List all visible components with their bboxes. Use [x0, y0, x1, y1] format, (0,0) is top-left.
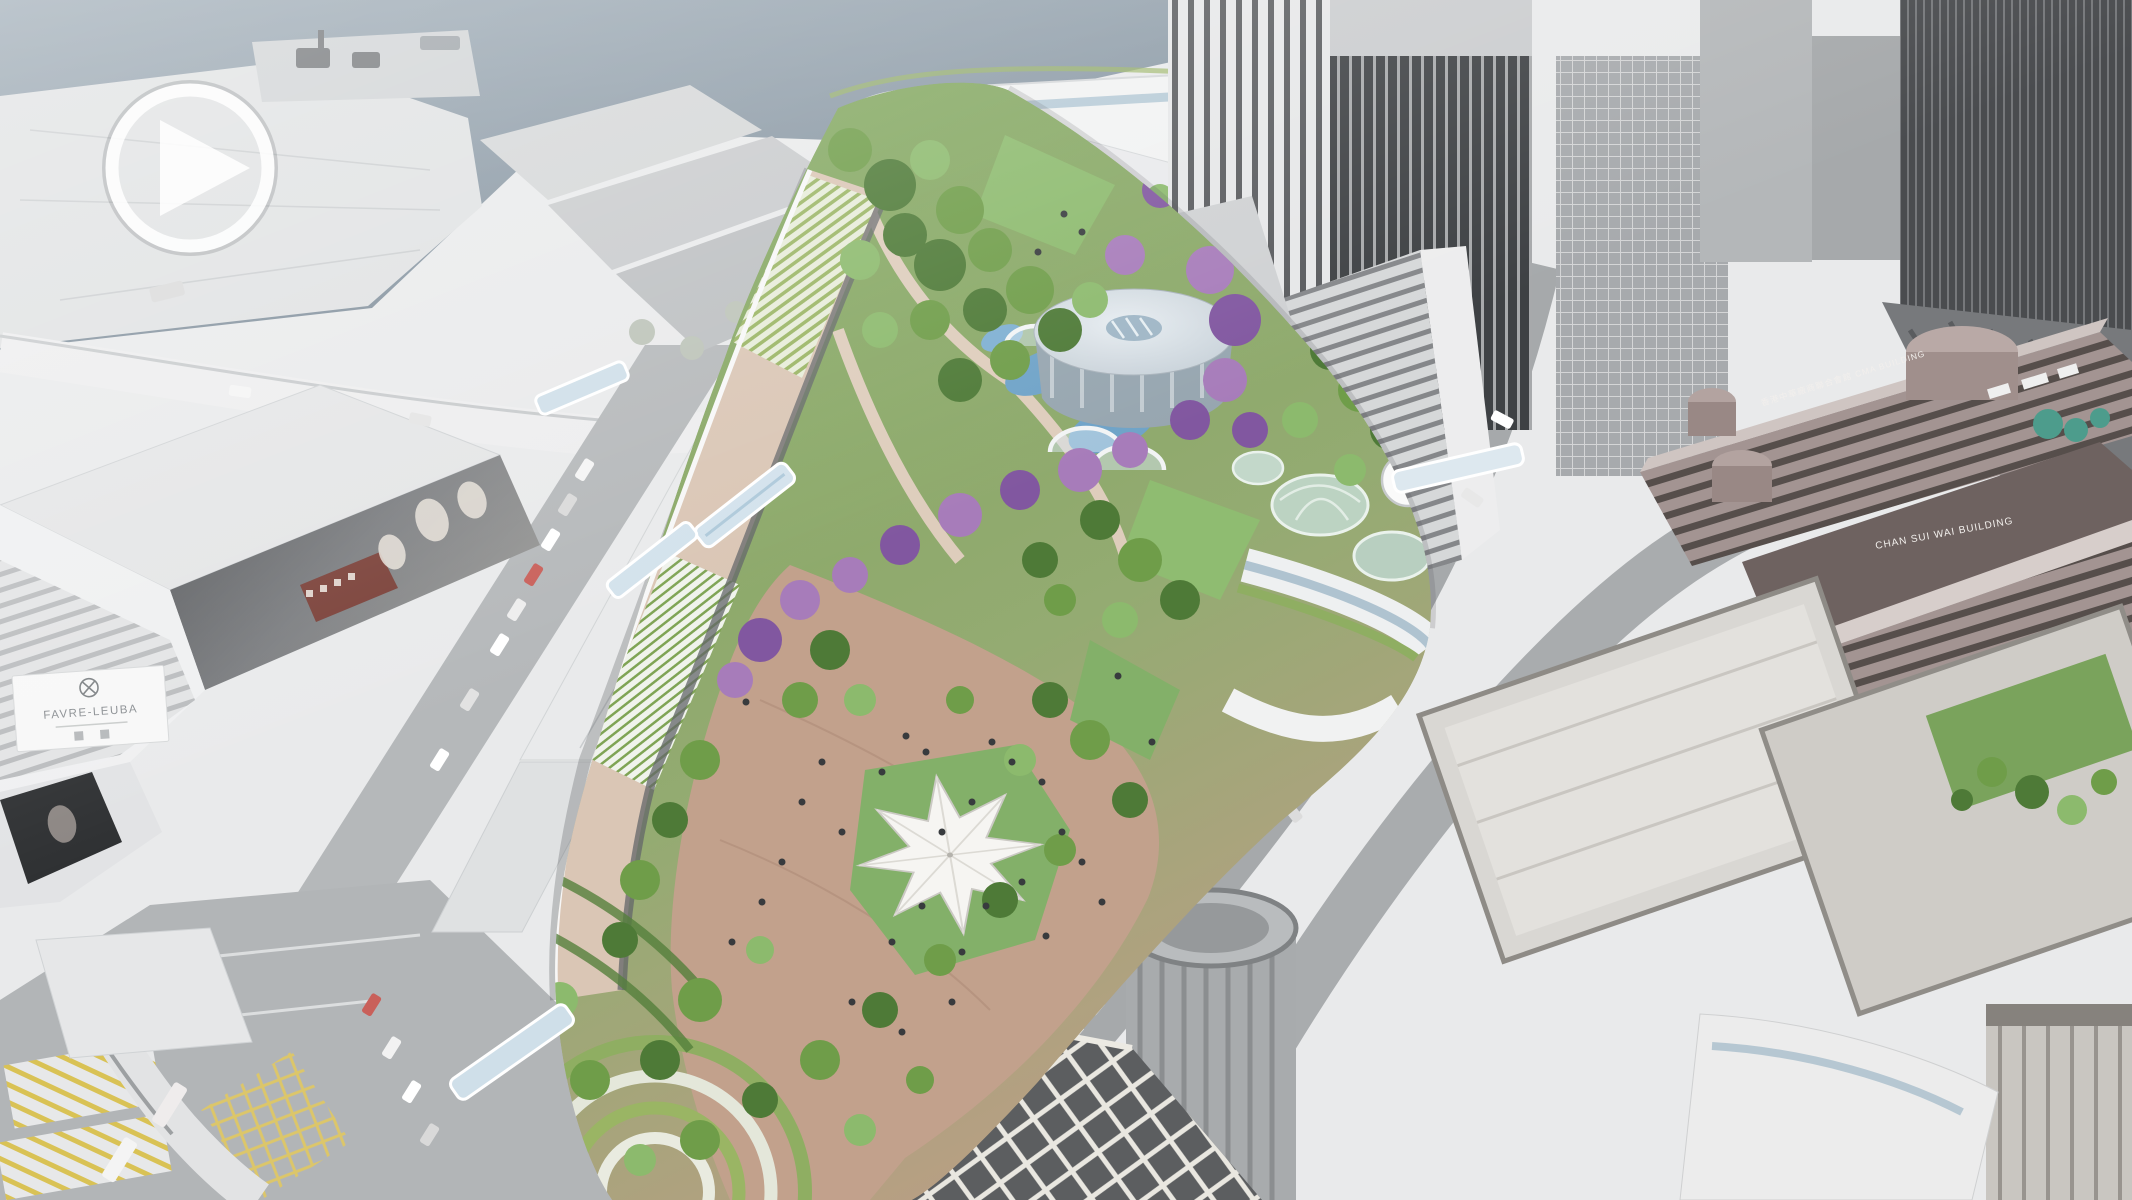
- light-wash-overlay: [0, 0, 2132, 1200]
- video-thumbnail-aerial-render: FAVRE-LEUBA 香港中華廠商聯合會館 CMA BUILDING CHAN…: [0, 0, 2132, 1200]
